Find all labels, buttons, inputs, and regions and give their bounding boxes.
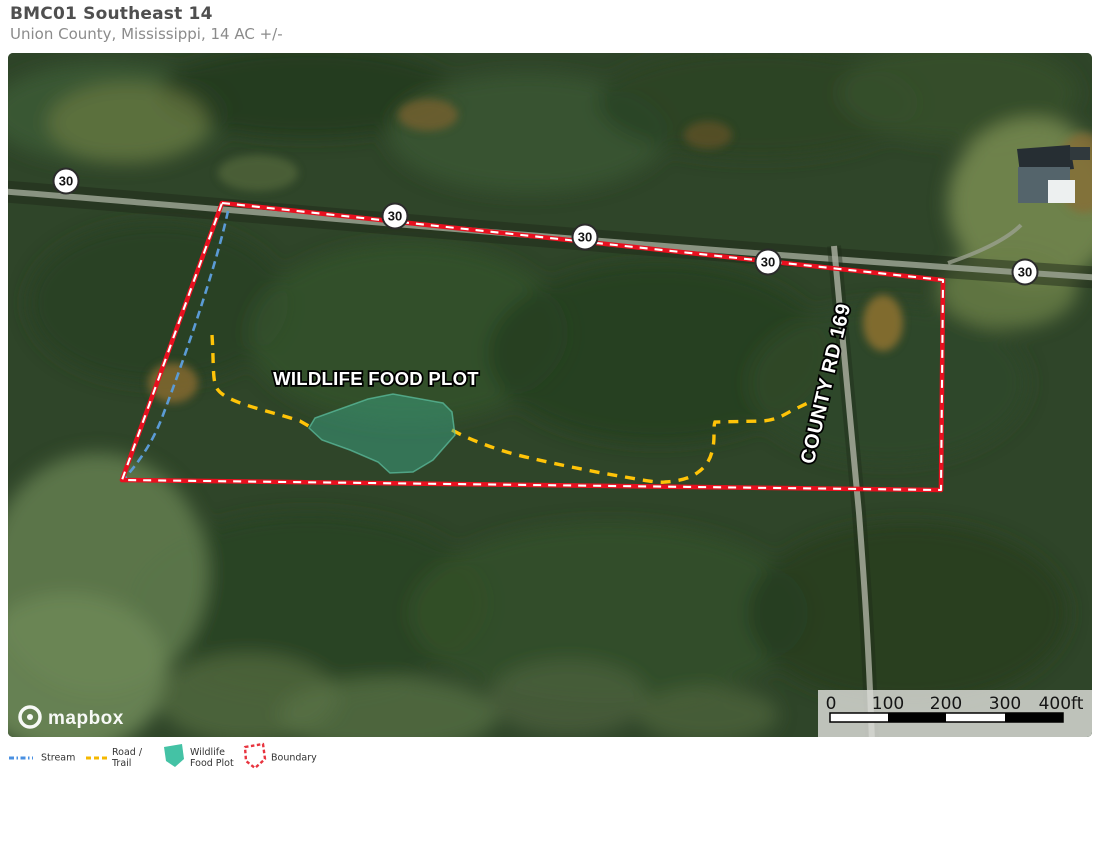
route-shield-30: 30 [573,225,598,250]
wildlife-food-plot-legend-icon [160,737,188,779]
page-title: BMC01 Southeast 14 [10,4,283,24]
scale-tick-200: 200 [930,694,962,714]
svg-text:30: 30 [1018,265,1032,280]
svg-text:30: 30 [761,255,775,270]
route-shield-30: 30 [1013,260,1038,285]
scale-tick-400ft: 400ft [1039,694,1084,714]
legend-item-boundary: Boundary [240,737,330,779]
legend-label-road-trail: Road / Trail [112,747,157,769]
route-shield-30: 30 [756,250,781,275]
boundary-legend-icon [240,737,268,779]
svg-text:30: 30 [388,209,402,224]
footer: id. The information contained herein was… [0,800,1100,849]
legend-item-wildlife-food-plot: Wildlife Food Plot [160,737,238,779]
legend-label-boundary: Boundary [271,753,317,764]
mapbox-wordmark: mapbox [48,708,124,729]
map-legend: Stream Road / Trail Wildlife Food Plot B… [0,737,1100,779]
satellite-texture [8,53,1092,737]
scale-bar: 0 100 200 300 400ft [818,690,1092,737]
legend-label-wildlife-food-plot: Wildlife Food Plot [190,747,238,769]
route-shield-30: 30 [383,204,408,229]
scale-tick-300: 300 [989,694,1021,714]
scale-tick-0: 0 [826,694,837,714]
header: BMC01 Southeast 14 Union County, Mississ… [10,4,283,43]
legend-item-stream: Stream [8,737,83,779]
legend-item-road-trail: Road / Trail [85,737,157,779]
food-plot-label: WILDLIFE FOOD PLOT [273,368,479,389]
svg-text:30: 30 [59,174,73,189]
stream-legend-icon [8,737,34,779]
legend-label-stream: Stream [41,753,75,764]
road-trail-legend-icon [85,737,109,779]
page-subtitle: Union County, Mississippi, 14 AC +/- [10,25,283,43]
svg-text:30: 30 [578,230,592,245]
scale-tick-100: 100 [872,694,904,714]
map-canvas: 30 30 30 30 30 WILDLIFE FOOD PLOT COUNTY… [8,53,1092,737]
route-shield-30: 30 [54,169,79,194]
